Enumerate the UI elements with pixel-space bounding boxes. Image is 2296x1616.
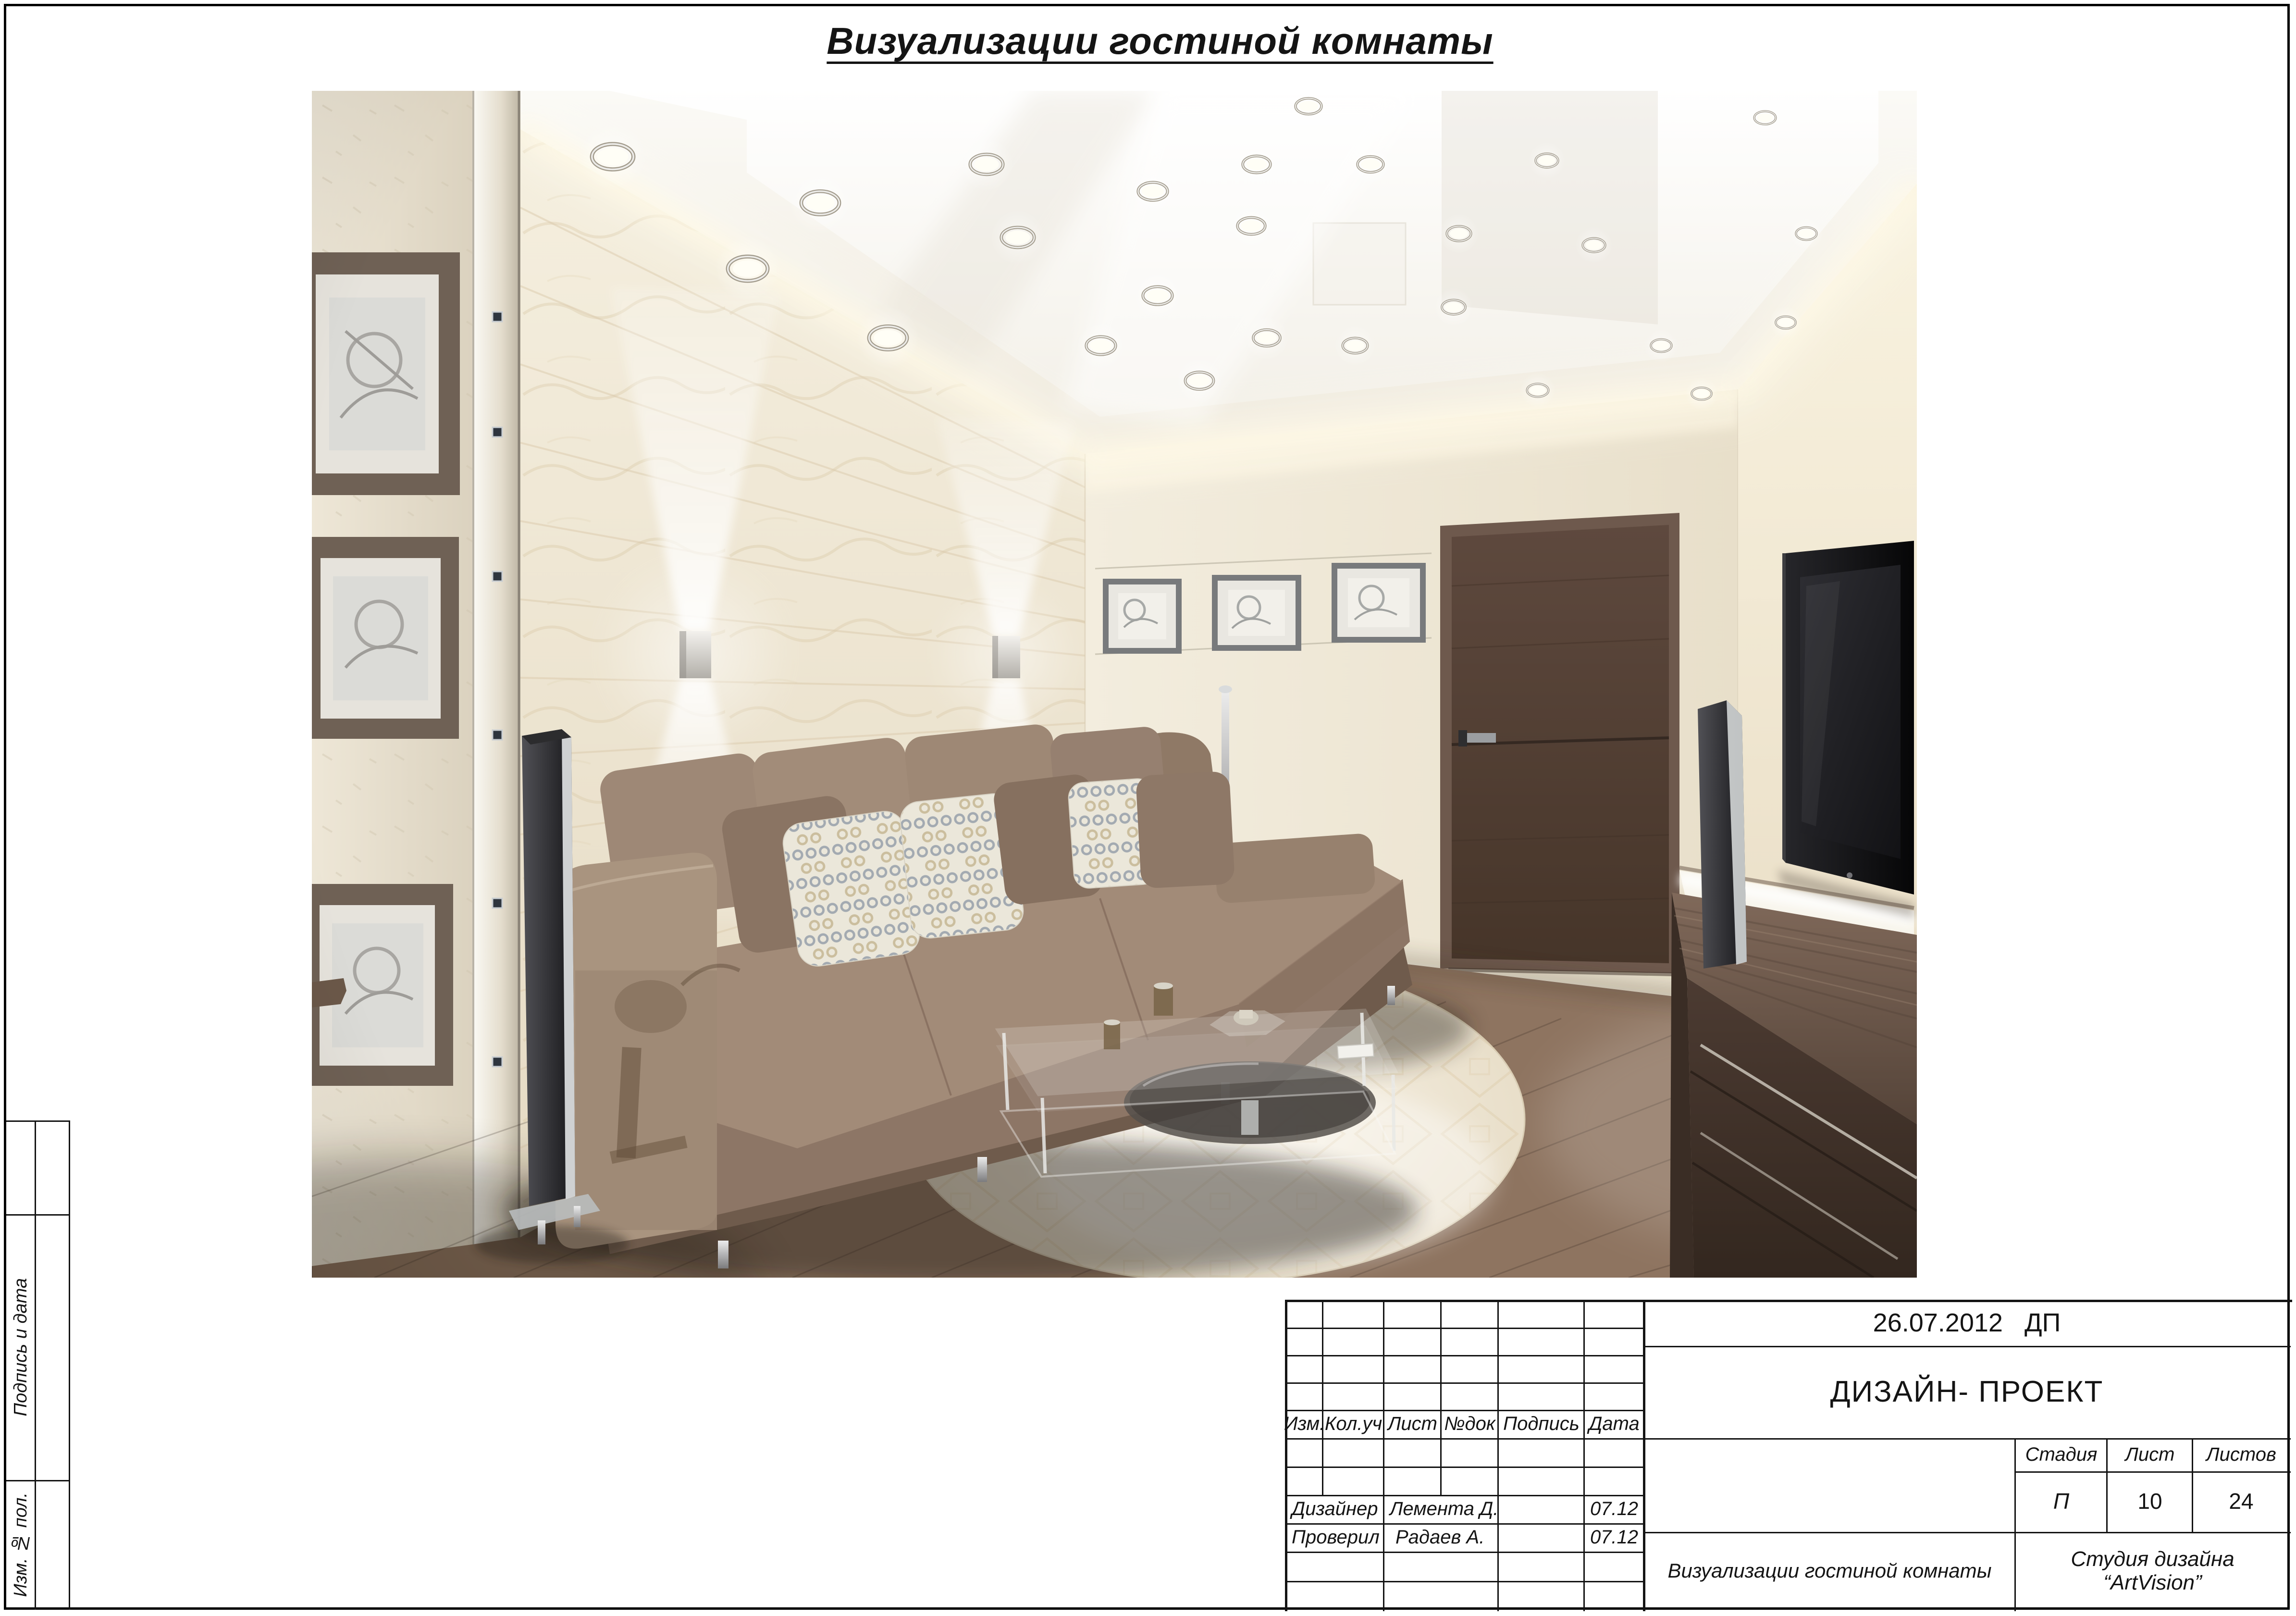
grid-line xyxy=(1583,1300,1585,1611)
row-checker-role: Проверил xyxy=(1286,1523,1384,1552)
studio-name: Студия дизайна “ArtVision” xyxy=(2015,1532,2290,1610)
grid-line xyxy=(1497,1300,1499,1611)
header-kol: Кол.уч xyxy=(1323,1410,1384,1438)
grid-line xyxy=(1286,1328,1644,1329)
living-room-render xyxy=(312,91,1917,1278)
inventory-cell: Изм. № пол. xyxy=(6,1480,36,1610)
header-data: Дата xyxy=(1584,1410,1644,1438)
page-title: Визуализации гостиной комнаты xyxy=(708,19,1612,72)
grid-line xyxy=(1286,1552,1644,1553)
header-list: Лист xyxy=(1384,1410,1441,1438)
doc-type: ДИЗАЙН- ПРОЕКТ xyxy=(1644,1346,2290,1438)
vignette xyxy=(312,91,1917,1278)
row-designer-date: 07.12 xyxy=(1584,1495,1644,1523)
row-checker-name: Радаев А. xyxy=(1384,1523,1498,1552)
signature-date-label: Подпись и дата xyxy=(11,1278,31,1416)
sheet-name: Визуализации гостиной комнаты xyxy=(1644,1532,2015,1610)
stage-label: Стадия xyxy=(2015,1438,2107,1471)
grid-line xyxy=(6,1120,70,1122)
grid-line xyxy=(1383,1300,1384,1611)
grid-line xyxy=(1440,1300,1442,1496)
sheet-number: 10 xyxy=(2107,1471,2193,1532)
sheet-label: Лист xyxy=(2107,1438,2193,1471)
grid-line xyxy=(1285,1300,1287,1611)
stage-value: П xyxy=(2015,1471,2107,1532)
drawing-sheet: { "page": { "title": "Визуализации гости… xyxy=(0,0,2296,1616)
signature-date-cell: Подпись и дата xyxy=(6,1214,36,1480)
studio-line2: “ArtVision” xyxy=(2103,1571,2202,1594)
row-checker-date: 07.12 xyxy=(1584,1523,1644,1552)
grid-line xyxy=(1286,1355,1644,1356)
date-stamp: 26.07.2012 ДП xyxy=(1644,1300,2290,1346)
sheets-label: Листов xyxy=(2193,1438,2290,1471)
header-ndok: №док xyxy=(1441,1410,1498,1438)
header-izm: Изм. xyxy=(1286,1410,1323,1438)
row-designer-name: Лемента Д. xyxy=(1384,1495,1498,1523)
grid-line xyxy=(69,1120,70,1610)
inventory-label: Изм. № пол. xyxy=(11,1492,31,1597)
grid-line xyxy=(1286,1581,1644,1582)
row-designer-role: Дизайнер xyxy=(1286,1495,1384,1523)
grid-line xyxy=(1286,1467,1644,1468)
sheets-total: 24 xyxy=(2193,1471,2290,1532)
header-podpis: Подпись xyxy=(1498,1410,1584,1438)
grid-line xyxy=(1322,1300,1323,1496)
grid-line xyxy=(1286,1382,1644,1384)
studio-line1: Студия дизайна xyxy=(2071,1547,2234,1571)
